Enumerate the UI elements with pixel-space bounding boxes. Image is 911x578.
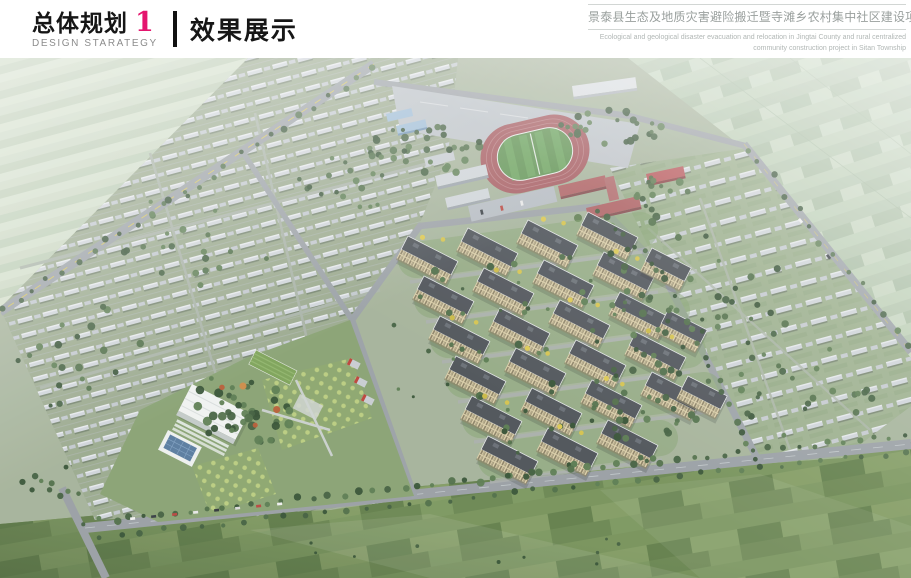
section-number: 1 [135, 9, 154, 36]
project-title-cn: 景泰县生态及地质灾害避险搬迁暨寺滩乡农村集中社区建设项目 [588, 4, 906, 30]
project-title-en: Ecological and geological disaster evacu… [588, 33, 906, 55]
section-title-en: DESIGN STARATEGY [32, 38, 158, 49]
slide: 总体规划 1 DESIGN STARATEGY 效果展示 景泰县生态及地质灾害避… [0, 0, 911, 578]
section-block: 总体规划 1 DESIGN STARATEGY [32, 9, 158, 49]
project-title-block: 景泰县生态及地质灾害避险搬迁暨寺滩乡农村集中社区建设项目 Ecological … [588, 4, 906, 55]
page-title: 效果展示 [190, 11, 298, 47]
slide-header: 总体规划 1 DESIGN STARATEGY 效果展示 景泰县生态及地质灾害避… [0, 0, 911, 58]
haze-layer [0, 58, 911, 578]
section-title-cn: 总体规划 [32, 12, 128, 35]
header-divider [173, 11, 177, 47]
aerial-rendering [0, 58, 911, 578]
